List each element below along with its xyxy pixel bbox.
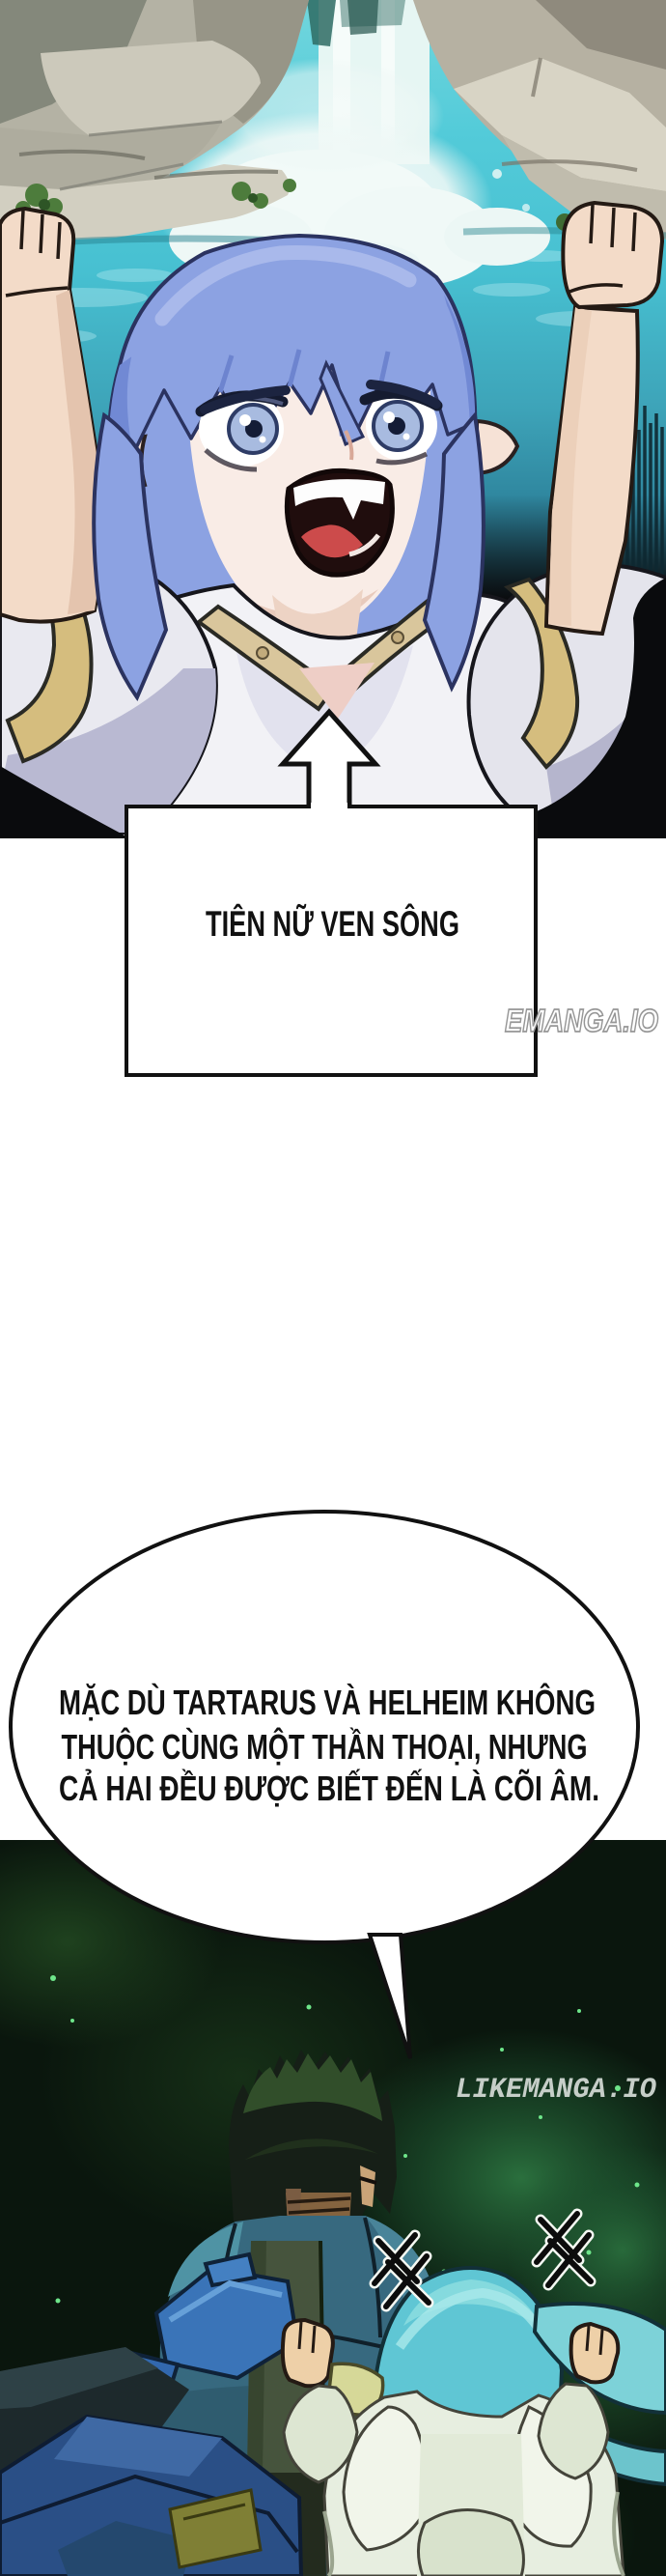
svg-text:LIKEMANGA.IO: LIKEMANGA.IO <box>456 2074 656 2107</box>
svg-text:TIÊN NỮ VEN SÔNG: TIÊN NỮ VEN SÔNG <box>206 903 459 944</box>
svg-text:THUỘC CÙNG MỘT THẦN THOẠI, NHƯ: THUỘC CÙNG MỘT THẦN THOẠI, NHƯNG <box>62 1726 588 1767</box>
svg-text:EMANGA.IO: EMANGA.IO <box>505 1003 658 1038</box>
svg-text:CẢ HAI ĐỀU ĐƯỢC BIẾT ĐẾN LÀ CÕ: CẢ HAI ĐỀU ĐƯỢC BIẾT ĐẾN LÀ CÕI ÂM. <box>59 1768 599 1808</box>
svg-text:MẶC DÙ TARTARUS VÀ HELHEIM KHÔ: MẶC DÙ TARTARUS VÀ HELHEIM KHÔNG <box>59 1682 596 1722</box>
